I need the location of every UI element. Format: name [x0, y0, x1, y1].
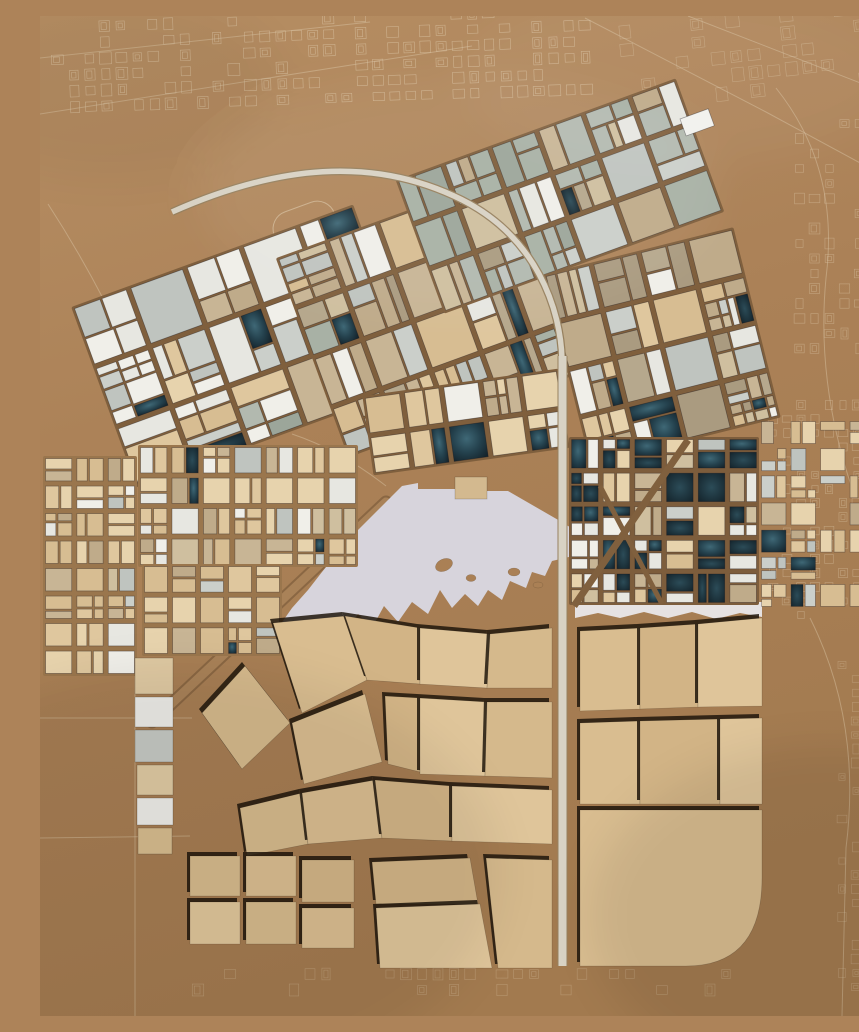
- city-block: [145, 597, 168, 612]
- city-block: [730, 556, 757, 569]
- city-block: [791, 449, 806, 471]
- city-block: [123, 459, 134, 481]
- city-block: [762, 557, 776, 568]
- city-block: [229, 597, 252, 609]
- city-block: [125, 596, 134, 606]
- city-block: [774, 585, 786, 598]
- city-block: [89, 624, 103, 646]
- city-block: [46, 459, 72, 469]
- city-block: [572, 440, 586, 468]
- city-block: [154, 509, 167, 524]
- city-block: [617, 473, 630, 501]
- city-block: [46, 651, 72, 673]
- city-block: [235, 539, 261, 564]
- city-block: [108, 526, 134, 536]
- city-block: [778, 557, 786, 568]
- city-block: [94, 609, 103, 618]
- city-block: [46, 541, 58, 563]
- city-block: [141, 448, 153, 473]
- city-block: [126, 486, 135, 495]
- city-block: [77, 459, 87, 481]
- city-block: [77, 500, 103, 509]
- city-block: [172, 448, 184, 473]
- city-block: [762, 530, 786, 552]
- city-block: [108, 541, 119, 563]
- city-block: [235, 520, 245, 534]
- city-block: [141, 525, 152, 534]
- city-block: [698, 507, 725, 535]
- city-block: [298, 448, 313, 473]
- vertical-corridor-road: [559, 356, 567, 966]
- city-block: [730, 473, 744, 501]
- city-block: [257, 567, 280, 576]
- city-block: [572, 540, 588, 556]
- city-block: [585, 523, 599, 535]
- city-block: [730, 540, 757, 553]
- city-block: [61, 486, 72, 508]
- city-block: [108, 624, 134, 646]
- south-block: [420, 628, 490, 688]
- city-block: [125, 609, 134, 619]
- city-block: [730, 452, 757, 468]
- city-block: [316, 554, 324, 564]
- city-block: [329, 478, 355, 503]
- city-block: [235, 478, 250, 503]
- city-block: [588, 440, 598, 468]
- city-block: [746, 507, 756, 523]
- marina-pier: [455, 477, 487, 499]
- city-block: [572, 486, 582, 502]
- city-block: [257, 638, 280, 653]
- city-block: [172, 478, 187, 503]
- city-block: [584, 486, 599, 502]
- city-block: [850, 422, 859, 431]
- city-block: [444, 383, 483, 422]
- city-block: [572, 507, 583, 521]
- city-block: [298, 478, 324, 503]
- city-block: [77, 651, 91, 673]
- city-block: [215, 539, 230, 564]
- city-block: [617, 440, 630, 449]
- city-block: [172, 539, 198, 564]
- city-block: [90, 459, 104, 481]
- city-block: [667, 521, 694, 535]
- city-block: [698, 574, 706, 602]
- city-block: [329, 509, 342, 534]
- city-block: [126, 497, 135, 508]
- city-block: [791, 490, 806, 498]
- city-block: [743, 401, 753, 411]
- south-block: [487, 628, 552, 688]
- city-block: [77, 596, 92, 607]
- city-block: [235, 509, 245, 518]
- harbor-island: [466, 575, 476, 582]
- city-block: [747, 473, 757, 501]
- city-block: [190, 478, 199, 503]
- city-block: [122, 541, 135, 563]
- city-block: [77, 514, 85, 536]
- city-block: [46, 569, 72, 591]
- city-block: [667, 593, 694, 602]
- city-block: [572, 574, 582, 588]
- city-block: [219, 509, 230, 534]
- city-block: [46, 611, 72, 618]
- city-block: [154, 525, 167, 534]
- district-harbor-east-district: [569, 437, 759, 605]
- city-block: [698, 540, 725, 556]
- city-block: [329, 556, 344, 564]
- city-block: [617, 451, 630, 468]
- city-block: [497, 379, 506, 395]
- city-block: [603, 440, 615, 449]
- city-block: [46, 523, 56, 536]
- city-block: [108, 569, 117, 591]
- city-block: [821, 585, 845, 607]
- city-block: [807, 541, 815, 552]
- city-block: [155, 448, 167, 473]
- district-west-mosaic-a: [138, 445, 358, 567]
- city-block: [108, 514, 134, 524]
- city-block: [46, 514, 56, 521]
- city-block: [762, 503, 786, 525]
- city-block: [145, 628, 168, 654]
- city-block: [730, 440, 757, 450]
- city-block: [204, 539, 213, 564]
- city-block: [93, 651, 103, 673]
- city-block: [58, 523, 72, 536]
- city-block: [762, 422, 774, 444]
- city-block: [572, 523, 583, 535]
- city-block: [667, 574, 694, 591]
- city-block: [617, 574, 630, 590]
- city-block: [257, 578, 280, 592]
- city-block: [603, 574, 615, 590]
- city-block: [108, 486, 123, 495]
- city-block: [108, 609, 123, 619]
- south-block: [580, 628, 640, 711]
- city-block: [156, 555, 167, 565]
- city-block: [489, 417, 528, 456]
- city-block: [730, 574, 757, 583]
- city-block: [89, 541, 103, 563]
- city-block: [746, 525, 756, 535]
- city-block: [229, 611, 252, 623]
- city-block: [603, 451, 615, 468]
- city-block: [204, 509, 217, 534]
- city-block: [229, 643, 237, 654]
- city-block: [667, 507, 694, 519]
- city-block: [201, 567, 224, 579]
- city-block: [346, 539, 355, 554]
- city-block: [635, 458, 662, 468]
- city-block: [329, 448, 355, 473]
- city-block: [239, 628, 252, 641]
- city-block: [266, 478, 292, 503]
- city-block: [791, 585, 803, 607]
- city-block: [46, 471, 72, 481]
- city-block: [77, 609, 92, 618]
- district-west-mosaic-b: [142, 564, 282, 656]
- city-block: [172, 509, 198, 534]
- city-block: [791, 557, 815, 570]
- city-block: [239, 643, 252, 654]
- city-block: [329, 539, 344, 554]
- city-block: [821, 422, 845, 431]
- city-block: [653, 507, 661, 535]
- city-block: [762, 476, 775, 498]
- city-block: [204, 458, 216, 473]
- city-block: [821, 530, 832, 552]
- city-block: [635, 589, 646, 602]
- city-block: [141, 539, 154, 552]
- city-block: [778, 461, 786, 471]
- city-block: [635, 574, 646, 587]
- city-block: [156, 539, 167, 552]
- city-block: [698, 440, 725, 450]
- city-block: [46, 624, 72, 646]
- city-block: [298, 554, 314, 564]
- city-block: [528, 414, 546, 429]
- city-block: [850, 476, 858, 498]
- city-block: [346, 556, 355, 564]
- city-block: [667, 540, 694, 552]
- city-block: [807, 530, 815, 539]
- city-block: [201, 628, 224, 654]
- city-block: [821, 449, 845, 471]
- city-block: [279, 448, 292, 473]
- city-block: [229, 628, 237, 641]
- city-block: [141, 509, 152, 524]
- south-block: [485, 702, 552, 778]
- city-block: [449, 422, 488, 461]
- city-block: [850, 503, 859, 525]
- city-block: [709, 574, 725, 602]
- city-block: [173, 628, 196, 654]
- city-block: [201, 597, 224, 623]
- city-block: [572, 473, 582, 483]
- city-block: [77, 486, 103, 498]
- city-block: [108, 497, 123, 508]
- city-block: [834, 530, 845, 552]
- model-aerial-view: [40, 16, 859, 1016]
- city-block: [590, 540, 599, 556]
- city-block: [266, 539, 292, 551]
- city-block: [791, 503, 815, 525]
- city-block: [77, 569, 103, 591]
- city-block: [277, 509, 293, 534]
- city-block: [60, 541, 71, 563]
- city-block: [808, 490, 816, 498]
- city-block: [120, 569, 135, 591]
- city-block: [145, 567, 168, 593]
- city-block: [46, 486, 59, 508]
- city-block: [313, 509, 324, 534]
- city-block: [235, 448, 261, 473]
- city-block: [229, 567, 252, 593]
- city-block: [730, 525, 744, 535]
- city-block: [791, 476, 806, 488]
- city-block: [762, 599, 772, 606]
- city-block: [247, 520, 261, 534]
- city-block: [667, 554, 694, 569]
- city-block: [791, 422, 800, 444]
- city-block: [58, 514, 72, 521]
- city-block: [173, 567, 196, 577]
- city-block: [365, 394, 404, 433]
- city-block: [778, 449, 786, 459]
- city-block: [201, 581, 224, 592]
- city-block: [850, 585, 859, 607]
- city-block: [530, 429, 549, 451]
- city-block: [266, 553, 292, 564]
- city-block: [77, 624, 87, 646]
- city-block: [730, 507, 744, 523]
- city-block: [850, 530, 859, 552]
- city-block: [733, 414, 746, 426]
- city-block: [667, 473, 694, 501]
- city-block: [298, 509, 311, 534]
- city-block: [87, 514, 103, 536]
- south-block: [640, 624, 698, 709]
- city-block: [649, 540, 661, 550]
- city-block: [850, 432, 859, 443]
- city-block: [617, 592, 630, 602]
- city-block: [173, 579, 196, 592]
- city-block: [762, 571, 776, 580]
- city-block: [145, 614, 168, 623]
- city-block: [635, 540, 647, 550]
- city-block: [791, 572, 815, 579]
- city-block: [522, 372, 561, 411]
- harbor-island: [508, 568, 520, 576]
- harbor-island: [533, 582, 543, 588]
- city-block: [316, 539, 324, 552]
- city-block: [141, 555, 154, 565]
- city-block: [204, 478, 230, 503]
- city-block: [108, 596, 123, 606]
- city-block: [791, 541, 805, 552]
- south-block: [698, 618, 762, 707]
- city-block: [698, 452, 725, 468]
- city-block: [218, 458, 230, 473]
- city-block: [344, 509, 355, 534]
- city-block: [584, 473, 599, 483]
- city-block: [762, 585, 772, 598]
- city-block: [252, 478, 261, 503]
- city-block: [649, 553, 661, 569]
- city-block: [266, 509, 274, 534]
- district-west-cluster: [43, 456, 137, 676]
- city-block: [46, 596, 72, 609]
- city-block: [698, 473, 725, 501]
- city-block: [709, 317, 723, 331]
- city-block: [298, 539, 314, 552]
- south-block: [580, 721, 640, 804]
- city-block: [635, 440, 662, 456]
- city-planning-model-photo: [40, 16, 859, 1016]
- city-block: [585, 507, 599, 521]
- city-block: [186, 448, 198, 473]
- city-block: [141, 478, 167, 491]
- city-block: [603, 592, 615, 602]
- city-block: [805, 585, 815, 607]
- city-block: [108, 459, 120, 481]
- city-block: [802, 422, 815, 444]
- city-block: [485, 397, 499, 416]
- city-block: [572, 559, 588, 569]
- city-block: [77, 541, 87, 563]
- city-block: [777, 476, 786, 498]
- city-block: [204, 448, 216, 457]
- city-block: [94, 596, 103, 607]
- city-block: [315, 448, 324, 473]
- city-block: [821, 476, 845, 484]
- city-block: [218, 448, 230, 457]
- city-block: [173, 597, 196, 623]
- city-block: [141, 494, 167, 504]
- city-block: [791, 530, 805, 539]
- city-block: [483, 380, 497, 396]
- city-block: [698, 559, 725, 569]
- city-block: [266, 448, 277, 473]
- city-block: [762, 461, 776, 471]
- city-block: [247, 509, 261, 518]
- city-block: [730, 585, 757, 603]
